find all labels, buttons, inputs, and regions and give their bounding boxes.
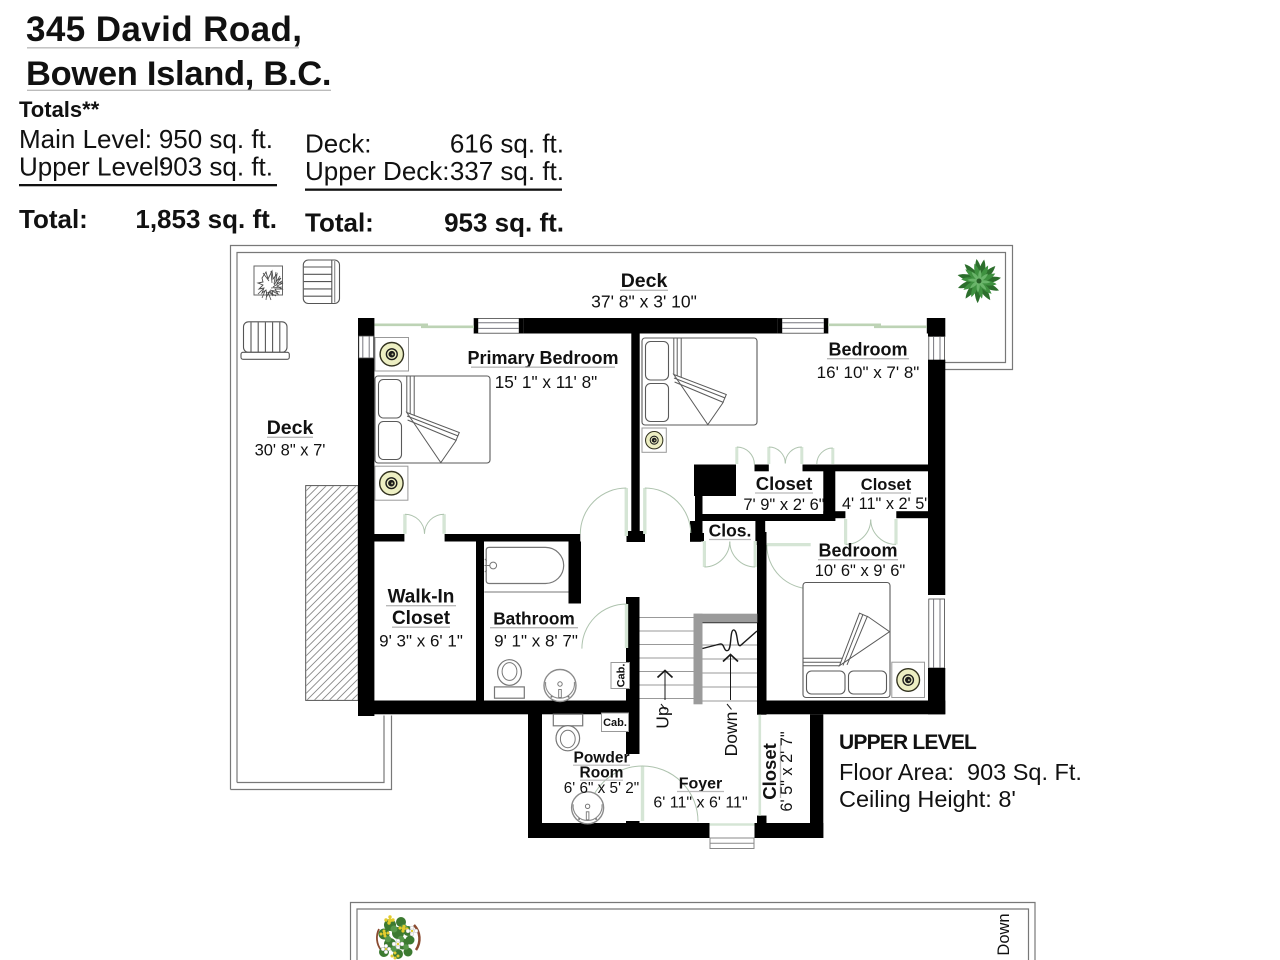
svg-text:30' 8" x 7': 30' 8" x 7' [255, 442, 326, 460]
svg-text:16' 10" x 7' 8": 16' 10" x 7' 8" [817, 363, 920, 382]
svg-text:Cab.: Cab. [603, 717, 627, 729]
svg-text:Total:: Total: [19, 204, 88, 234]
svg-text:Foyer: Foyer [679, 776, 723, 793]
svg-text:903 sq. ft.: 903 sq. ft. [159, 152, 273, 182]
svg-text:Deck: Deck [621, 270, 668, 292]
svg-text:337 sq. ft.: 337 sq. ft. [450, 156, 564, 186]
svg-text:Up: Up [653, 706, 673, 728]
svg-text:Main Level:: Main Level: [19, 124, 152, 154]
svg-text:9' 1" x 8' 7": 9' 1" x 8' 7" [494, 632, 578, 651]
svg-text:345 David Road,: 345 David Road, [26, 10, 302, 49]
svg-text:Ceiling Height: 8': Ceiling Height: 8' [839, 786, 1016, 812]
svg-text:Down: Down [995, 913, 1013, 955]
svg-text:Cab.: Cab. [616, 664, 628, 688]
svg-text:Total:: Total: [305, 208, 374, 238]
svg-text:7' 9" x 2' 6": 7' 9" x 2' 6" [743, 496, 824, 514]
svg-text:Closet: Closet [759, 743, 780, 800]
svg-text:37' 8" x 3' 10": 37' 8" x 3' 10" [591, 292, 697, 312]
svg-text:Closet: Closet [756, 473, 813, 494]
svg-text:Closet: Closet [861, 476, 912, 494]
svg-text:6' 6" x 5' 2": 6' 6" x 5' 2" [564, 780, 639, 797]
svg-text:Bedroom: Bedroom [818, 541, 897, 561]
svg-text:Floor Area: 903 Sq. Ft.: Floor Area: 903 Sq. Ft. [839, 759, 1082, 785]
svg-text:15' 1" x 11' 8": 15' 1" x 11' 8" [495, 372, 598, 392]
svg-text:10' 6" x 9' 6": 10' 6" x 9' 6" [815, 562, 906, 580]
svg-text:6' 5" x 2' 7": 6' 5" x 2' 7" [778, 731, 796, 811]
svg-text:9' 3" x 6' 1": 9' 3" x 6' 1" [379, 632, 463, 651]
svg-text:Totals**: Totals** [19, 97, 100, 122]
svg-text:Deck: Deck [267, 417, 314, 439]
svg-text:Upper Level:: Upper Level: [19, 152, 166, 182]
svg-text:Deck:: Deck: [305, 129, 371, 159]
svg-text:Closet: Closet [392, 608, 451, 629]
svg-text:1,853 sq. ft.: 1,853 sq. ft. [135, 204, 277, 234]
svg-text:Walk-In: Walk-In [388, 587, 455, 608]
svg-text:4' 11" x 2' 5": 4' 11" x 2' 5" [842, 495, 930, 513]
svg-text:Bowen Island, B.C.: Bowen Island, B.C. [26, 55, 331, 93]
svg-text:Primary Bedroom: Primary Bedroom [467, 348, 618, 368]
svg-text:Bedroom: Bedroom [828, 340, 907, 360]
svg-text:Down: Down [721, 712, 741, 757]
svg-text:UPPER LEVEL: UPPER LEVEL [839, 731, 977, 754]
svg-text:Room: Room [580, 764, 624, 781]
svg-text:616 sq. ft.: 616 sq. ft. [450, 129, 564, 159]
svg-text:Upper Deck:: Upper Deck: [305, 156, 450, 186]
svg-text:6' 11" x 6' 11": 6' 11" x 6' 11" [653, 795, 747, 812]
svg-text:Clos.: Clos. [709, 521, 752, 541]
svg-text:950 sq. ft.: 950 sq. ft. [159, 124, 273, 154]
svg-text:953 sq. ft.: 953 sq. ft. [444, 208, 564, 238]
svg-text:Bathroom: Bathroom [493, 609, 575, 629]
